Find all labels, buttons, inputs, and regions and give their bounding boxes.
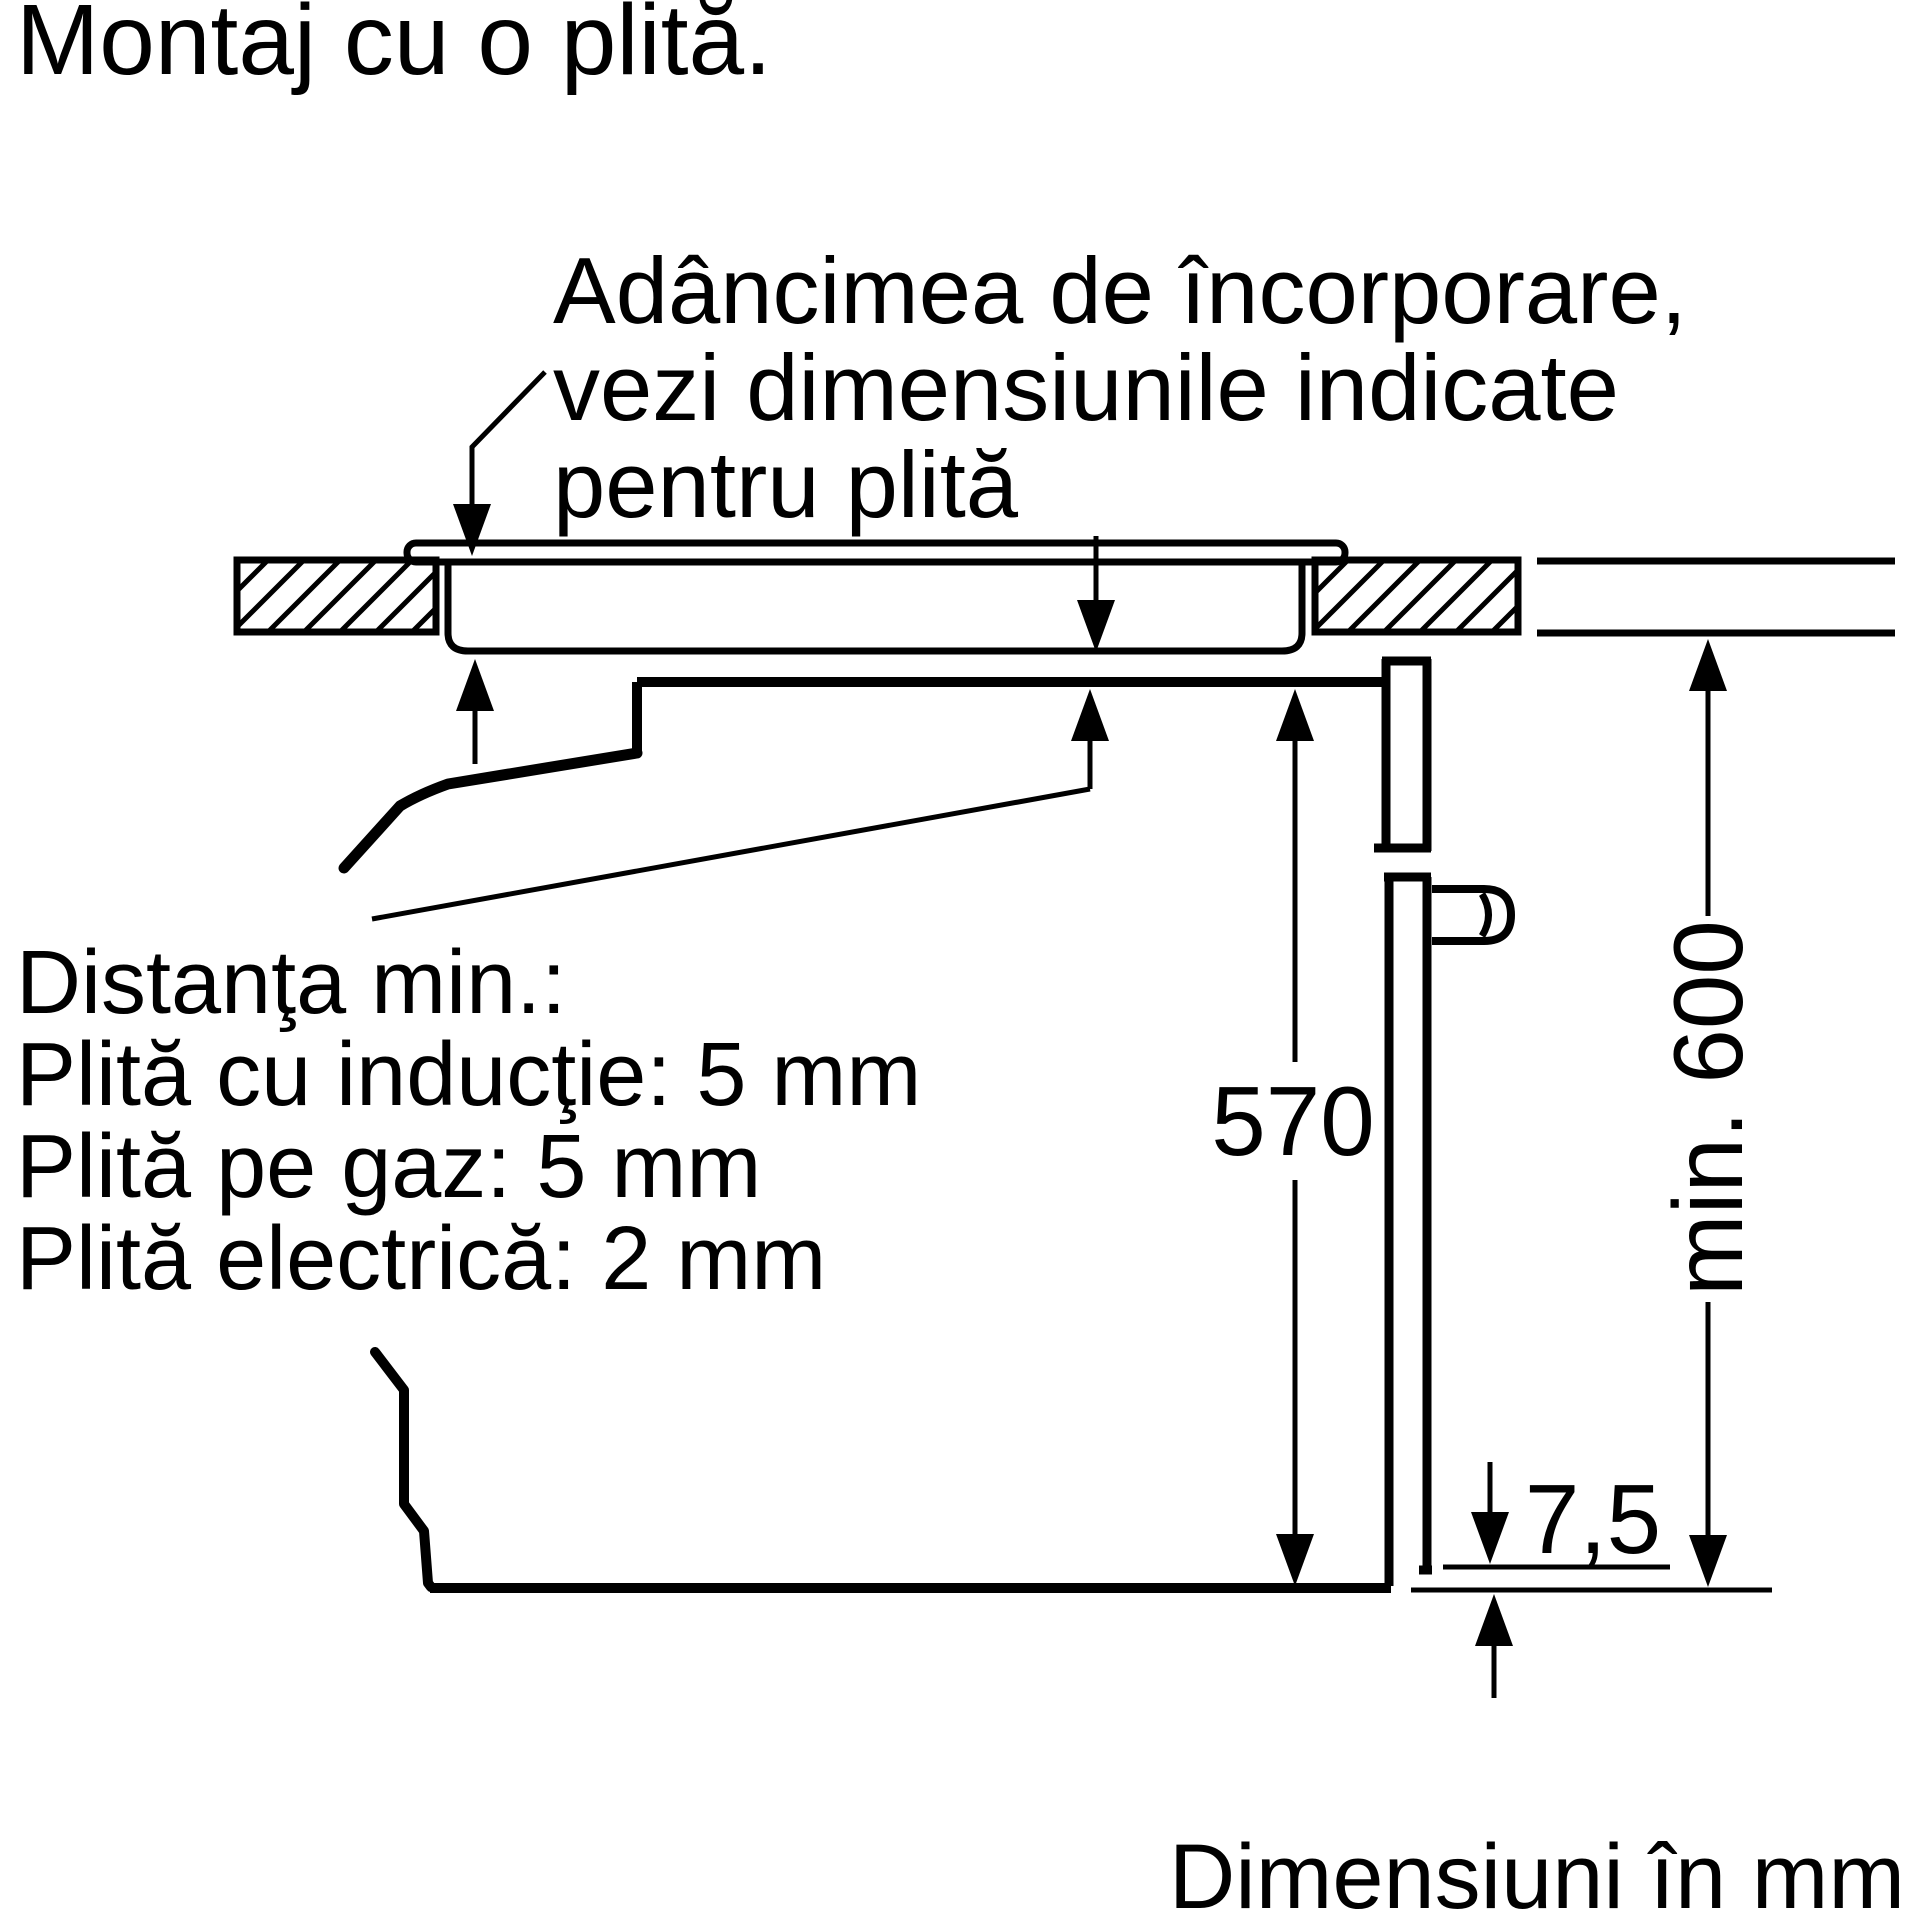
min-distance-line-1: Distanţa min.: <box>16 933 566 1033</box>
cabinet-break-edge-upper <box>344 753 637 868</box>
leader-line <box>472 372 545 506</box>
min-distance-note: Distanţa min.: Plită cu inducţie: 5 mm P… <box>16 933 921 1309</box>
dim75-arrowhead-down-icon <box>1471 1512 1509 1564</box>
min-distance-indicators <box>372 659 1109 919</box>
footer-units-note: Dimensiuni în mm <box>1169 1826 1905 1920</box>
dimension-min-600: min. 600 <box>1653 639 1763 1587</box>
worktop-left-hatched-block <box>237 560 436 632</box>
dim600-arrowhead-down-icon <box>1689 1535 1727 1587</box>
dim600-label: min. 600 <box>1653 920 1763 1296</box>
dim570-arrowhead-up-icon <box>1276 689 1314 741</box>
note-line-1: Adâncimea de încorporare, <box>553 238 1687 343</box>
hob-body-outline <box>448 560 1302 651</box>
embedding-depth-note: Adâncimea de încorporare, vezi dimensiun… <box>553 238 1687 537</box>
oven-installation-diagram: 570 min. 600 7,5 Montaj cu o plită. Adân… <box>0 0 1920 1920</box>
oven-top-arrowhead-up-icon <box>1071 689 1109 741</box>
min-distance-line-3: Plită pe gaz: 5 mm <box>16 1117 761 1217</box>
dim600-arrowhead-up-icon <box>1689 639 1727 691</box>
dim75-label: 7,5 <box>1525 1464 1661 1574</box>
dim570-arrowhead-down-icon <box>1276 1534 1314 1586</box>
oven-control-knob <box>1432 889 1511 941</box>
cabinet-break-edge-lower <box>375 1352 431 1587</box>
knob-outline <box>1432 889 1511 941</box>
dim570-label: 570 <box>1211 1066 1375 1176</box>
dimension-570: 570 <box>1211 689 1375 1586</box>
hob-underside-arrowhead-up-icon <box>456 659 494 711</box>
dim75-arrowhead-up-icon <box>1475 1594 1513 1646</box>
min-distance-line-4: Plită electrică: 2 mm <box>16 1209 826 1309</box>
min-distance-leader-line <box>372 789 1090 919</box>
note-line-2: vezi dimensiunile indicate <box>553 335 1619 440</box>
oven-front-frame <box>1374 659 1432 1586</box>
hob-flange <box>407 543 1345 562</box>
worktop-right-hatched-block <box>1315 560 1518 632</box>
min-distance-line-2: Plită cu inducţie: 5 mm <box>16 1025 921 1125</box>
note-line-3: pentru plită <box>553 432 1019 537</box>
embedding-depth-leader <box>453 372 545 556</box>
dimension-7-5: 7,5 <box>1411 1462 1772 1698</box>
installation-diagram-page: 570 min. 600 7,5 Montaj cu o plită. Adân… <box>0 0 1920 1920</box>
page-title: Montaj cu o plită. <box>16 0 772 96</box>
hob-cross-section <box>407 543 1345 651</box>
